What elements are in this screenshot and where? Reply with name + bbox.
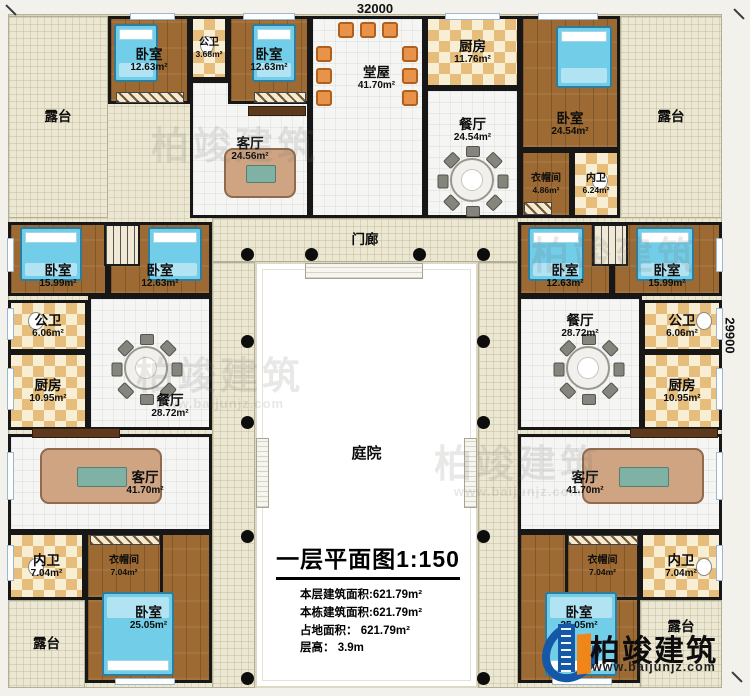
logo-building-orange [577,633,591,674]
room-label: 衣帽间 [588,555,618,566]
window-icon [538,13,598,20]
window-icon [716,368,723,410]
room-label: 衣帽间 [531,173,561,184]
table-icon [566,346,610,390]
room-area: 12.63m² [250,62,287,73]
stat-line: 占地面积： 621.79m² [300,623,474,641]
room-area: 6.24m² [583,185,610,195]
column-icon [241,248,254,261]
window-icon [716,308,723,340]
dining-table-icon [124,346,168,390]
column-icon [477,335,490,348]
room-label: 卧室 [256,47,283,62]
room-label: 餐厅 [567,313,594,328]
room-label: 露台 [33,636,60,651]
room-area: 28.72m² [151,408,188,419]
dimension-tick [733,8,744,19]
window-icon [7,368,14,410]
room-label: 卧室 [654,263,681,278]
room-label: 内卫 [586,173,606,184]
dimension-right: 29900 [723,306,738,366]
wardrobe-hatch [524,202,552,215]
window-icon [445,13,500,20]
chair-icon [316,68,332,84]
chair-icon [316,46,332,62]
room-label: 卧室 [147,263,174,278]
window-icon [115,678,175,685]
entrance-steps [305,263,423,279]
tv-cabinet-icon [248,106,306,116]
chair-icon [360,22,376,38]
toilet-icon [696,558,712,576]
side-steps [256,438,269,508]
room-area: 7.04m² [31,568,63,579]
dimension-top: 32000 [330,1,420,16]
column-icon [477,530,490,543]
tv-cabinet-icon [32,428,120,438]
room-area: 7.04m² [111,567,138,577]
room-area: 7.04m² [589,567,616,577]
room-label: 厨房 [35,378,62,393]
column-icon [241,672,254,685]
room-label: 露台 [658,109,685,124]
room-area: 6.06m² [666,328,698,339]
room-area: 7.04m² [665,568,697,579]
bed-icon [556,26,612,88]
room-area: 25.05m² [130,620,167,631]
room-pubbath-l: 公卫 6.06m² [8,300,88,352]
column-icon [241,530,254,543]
room-label: 客厅 [237,136,264,151]
room-area: 15.99m² [648,278,685,289]
tv-cabinet-icon [630,428,718,438]
wardrobe-hatch [90,535,160,545]
room-label: 衣帽间 [109,555,139,566]
plan-title: 一层平面图1:150 [276,540,460,580]
room-area: 10.95m² [663,393,700,404]
room-area: 41.70m² [126,485,163,496]
room-innerbath-bl: 内卫 7.04m² [8,532,85,600]
room-area: 12.63m² [141,278,178,289]
window-icon [7,452,14,500]
porch: 门廊 [212,218,518,262]
room-area: 6.06m² [32,328,64,339]
room-label: 内卫 [668,553,695,568]
window-icon [7,238,14,272]
side-steps [464,438,477,508]
room-kitchen-top: 厨房 11.76m² [425,16,520,88]
column-icon [477,672,490,685]
room-area: 24.56m² [231,151,268,162]
plan-title-text: 一层平面图 [276,546,396,572]
porch-left [212,262,255,688]
wardrobe-hatch [568,535,638,545]
plan-scale: 1:150 [396,546,460,572]
room-label: 餐厅 [459,117,486,132]
room-area: 15.99m² [39,278,76,289]
column-icon [413,248,426,261]
room-label: 内卫 [33,553,60,568]
room-label: 公卫 [199,37,219,48]
room-area: 12.63m² [546,278,583,289]
room-label: 厨房 [669,378,696,393]
window-icon [243,13,295,20]
wardrobe-hatch [116,92,184,103]
room-label: 客厅 [132,470,159,485]
column-icon [241,335,254,348]
room-terrace-tr: 露台 [620,16,722,218]
window-icon [130,13,175,20]
room-label: 客厅 [572,470,599,485]
brand-url: www.baijunjz.com [592,660,716,674]
floor-plan-image: 32000 29900 客厅 24.56m² 露台 卧室 12.63m² 公卫 … [0,0,750,696]
room-area: 28.72m² [561,328,598,339]
room-label: 露台 [45,109,72,124]
window-icon [7,545,14,581]
room-label: 堂屋 [363,65,390,80]
chair-icon [382,22,398,38]
stairs-icon [104,224,140,266]
room-area: 24.54m² [454,132,491,143]
room-label: 卧室 [552,263,579,278]
table-icon [450,158,494,202]
column-icon [305,248,318,261]
window-icon [716,452,723,500]
room-area: 41.70m² [358,80,395,91]
logo-building-blue [558,624,575,672]
room-area: 3.68m² [196,49,223,59]
courtyard-label: 庭院 [351,446,381,463]
plan-stats: 本层建筑面积:621.79m² 本栋建筑面积:621.79m² 占地面积： 62… [262,587,474,658]
window-icon [7,308,14,340]
porch-label: 门廊 [352,232,379,247]
porch-right [478,262,518,688]
window-icon [716,238,723,272]
chair-icon [338,22,354,38]
chair-icon [316,90,332,106]
dining-table-icon [450,158,494,202]
column-icon [241,416,254,429]
stat-line: 本层建筑面积:621.79m² [300,587,474,605]
room-area: 41.70m² [566,485,603,496]
dining-table-icon [566,346,610,390]
room-pubbath-a: 公卫 3.68m² [190,16,228,80]
chair-icon [402,90,418,106]
chair-icon [402,46,418,62]
column-icon [477,416,490,429]
title-block: 一层平面图1:150 本层建筑面积:621.79m² 本栋建筑面积:621.79… [262,540,474,658]
room-area: 24.54m² [551,126,588,137]
room-area: 10.95m² [29,393,66,404]
window-icon [716,545,723,581]
room-area: 11.76m² [454,54,491,65]
room-label: 公卫 [35,313,62,328]
toilet-icon [696,312,712,330]
wardrobe-hatch [254,92,306,103]
table-icon [124,346,168,390]
room-label: 卧室 [45,263,72,278]
stat-line: 本栋建筑面积:621.79m² [300,605,474,623]
room-kitchen-l: 厨房 10.95m² [8,352,88,430]
room-label: 卧室 [136,47,163,62]
room-label: 公卫 [669,313,696,328]
brand-logo: 柏竣建筑 www.baijunjz.com [538,588,748,694]
room-area: 4.86m² [533,185,560,195]
column-icon [477,248,490,261]
room-terrace-bl: 露台 [8,600,85,688]
room-terrace-tl: 露台 [8,16,108,218]
stat-line: 层高： 3.9m [300,640,474,658]
room-label: 厨房 [459,39,486,54]
chair-icon [402,68,418,84]
stairs-icon [592,224,628,266]
room-label: 餐厅 [157,393,184,408]
room-innerbath-tr: 内卫 6.24m² [572,150,620,218]
room-kitchen-r: 厨房 10.95m² [642,352,722,430]
room-area: 12.63m² [130,62,167,73]
room-label: 卧室 [557,111,584,126]
room-label: 卧室 [135,605,162,620]
